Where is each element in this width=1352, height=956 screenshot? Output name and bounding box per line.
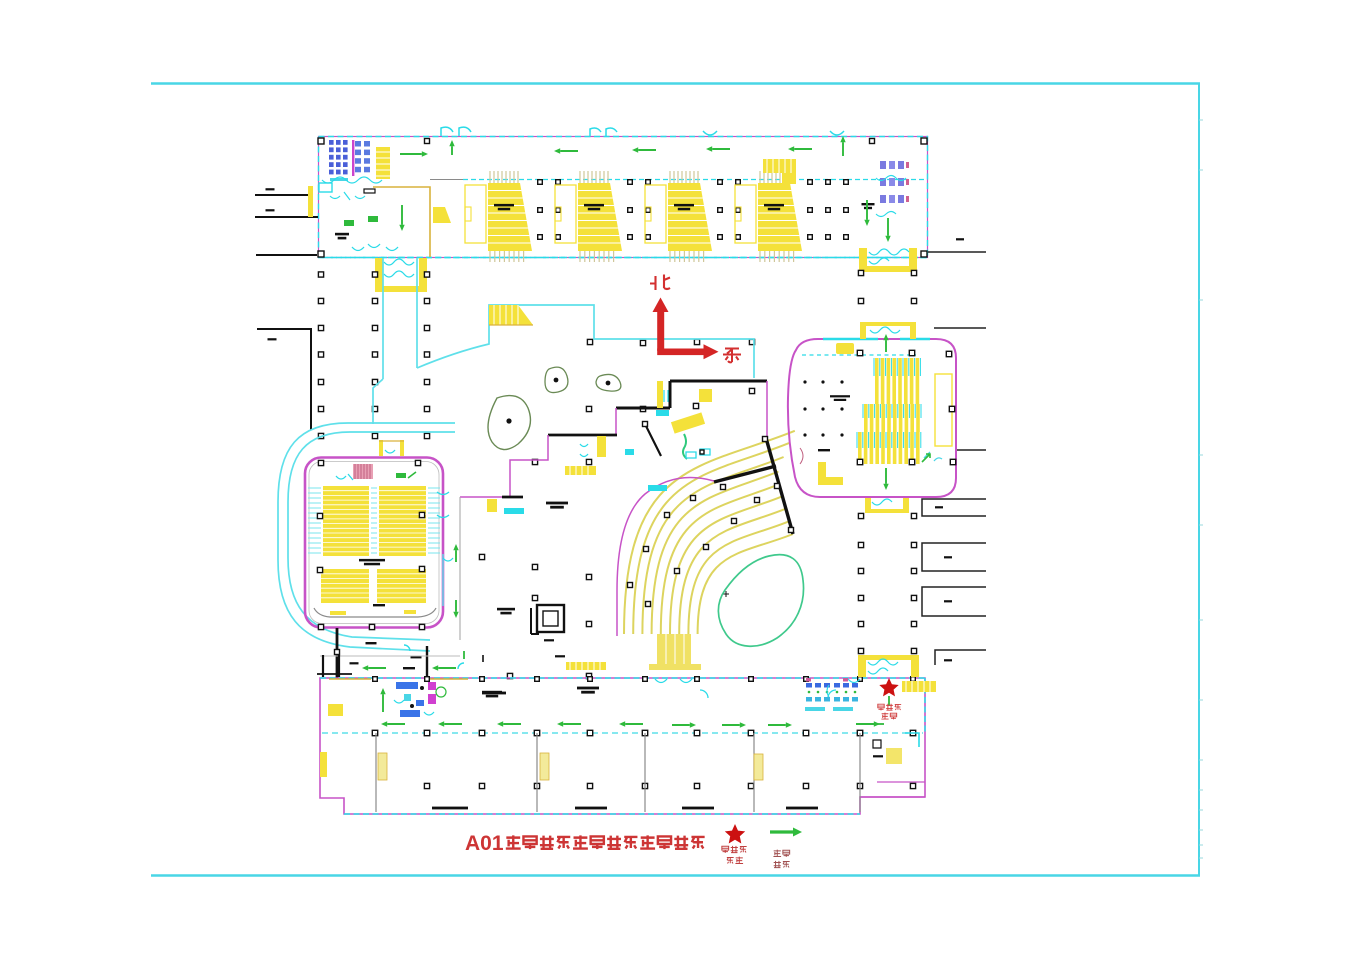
svg-text:A01: A01 (465, 832, 504, 855)
